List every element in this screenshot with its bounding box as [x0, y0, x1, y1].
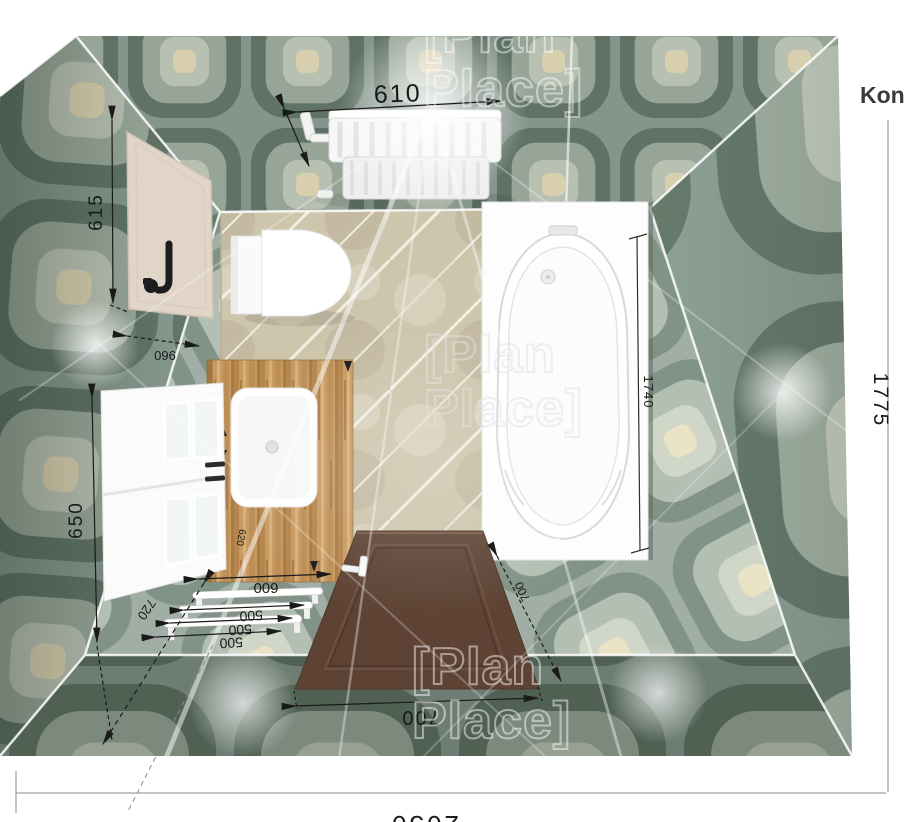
dim-room-width: 2050 [389, 810, 459, 822]
corner-note: Kons [860, 82, 904, 109]
dim-room-depth: 1775 [869, 373, 892, 428]
dim-bathtub-length: 1740 [641, 376, 656, 409]
cabinet [101, 383, 226, 601]
dim-vanity-width: 600 [253, 579, 278, 596]
dim-rail-3: 500 [219, 634, 243, 651]
dim-door-width: 700 [400, 706, 439, 728]
3d-viewport[interactable]: 610 615 960 650 720 600 500 500 500 620 … [0, 0, 904, 822]
faucet-icon [549, 226, 577, 235]
dim-panel-height: 615 [86, 193, 107, 231]
dim-radiator-width: 610 [373, 79, 422, 109]
dim-panel-width: 960 [154, 348, 176, 363]
dim-cabinet-height: 650 [66, 501, 87, 539]
room-render: 610 615 960 650 720 600 500 500 500 620 … [0, 0, 904, 822]
